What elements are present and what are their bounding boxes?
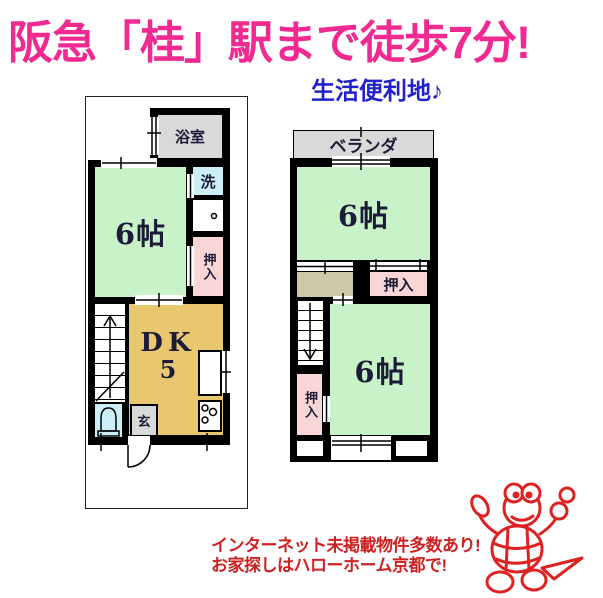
closet-1f-label: 押入 (202, 253, 215, 281)
bathroom-label: 浴室 (175, 126, 205, 147)
room-toilet (95, 404, 122, 437)
closet-2f-left: 押入 (297, 374, 322, 435)
stairs-2f (298, 301, 323, 365)
window-kitchen (222, 351, 230, 393)
opening-room-closet (187, 246, 194, 286)
room-6jo-2f-bottom-label: 6帖 (354, 349, 405, 391)
footer-line-2: お家探しはハローホーム京都で! (211, 551, 447, 576)
room-6jo-2f-top: 6帖 (297, 167, 430, 260)
stove (198, 400, 222, 432)
closet-2f-top-label: 押入 (383, 274, 413, 295)
wall-inset-left (297, 441, 323, 456)
window-2f-bottom (331, 436, 391, 460)
sub-headline: 生活便利地♪ (311, 71, 443, 106)
room-6jo-1f: 6帖 (95, 167, 186, 297)
landing-2f (297, 272, 353, 297)
turtle-foot-left (487, 572, 513, 592)
wall-inset-right (396, 441, 427, 456)
opening-room-landing (297, 262, 353, 271)
room-6jo-1f-label: 6帖 (115, 211, 166, 253)
front-door-opening (128, 436, 150, 445)
turtle-hand-wave (470, 493, 492, 519)
dk-label: DK 5 (135, 330, 201, 382)
turtle-arm-right (540, 518, 556, 534)
turtle-tail (542, 558, 582, 579)
opening-landing-room (333, 296, 353, 304)
kitchen-sink (198, 350, 222, 396)
room-closet-1f: 押入 (193, 237, 223, 296)
turtle-fist (551, 503, 567, 519)
window-1f-top (101, 158, 157, 168)
entrance-label: 玄 (137, 411, 150, 430)
opening-room-closet-2f (370, 262, 427, 270)
room-6jo-2f-top-label: 6帖 (338, 193, 389, 235)
laundry-label: 洗 (200, 171, 215, 192)
room-bathroom: 浴室 (158, 115, 222, 158)
closet-2f-top: 押入 (370, 272, 427, 296)
veranda-label: ベランダ (330, 132, 398, 157)
opening-room-dk (135, 295, 183, 305)
room-entrance: 玄 (130, 404, 158, 437)
window-2f-top (332, 156, 390, 167)
real-estate-flyer: 阪急「桂」駅まで徒歩7分! 生活便利地♪ 浴室 6帖 洗 押入 DK 5 (0, 0, 603, 598)
opening-closet-room-2f (323, 396, 330, 422)
turtle-mascot (470, 478, 602, 596)
room-vanity (193, 200, 223, 231)
veranda: ベランダ (293, 130, 434, 159)
headline: 阪急「桂」駅まで徒歩7分! (8, 6, 600, 71)
bath-door-opening (149, 117, 159, 155)
opening-room-laundry (187, 174, 194, 198)
room-6jo-2f-bottom: 6帖 (330, 304, 430, 435)
turtle-foot-right (522, 570, 546, 590)
closet-2f-left-label: 押入 (303, 391, 316, 419)
room-laundry: 洗 (193, 167, 223, 195)
stairs-1f (95, 304, 125, 402)
